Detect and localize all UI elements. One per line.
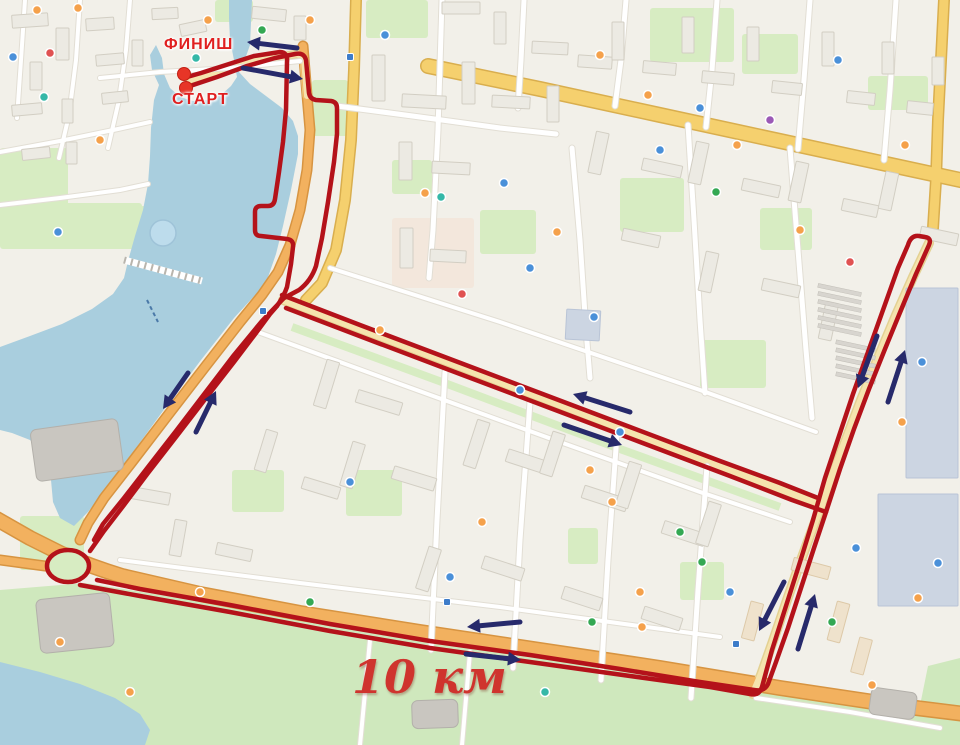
building (462, 62, 475, 104)
finish-label: ФИНИШ (164, 36, 233, 54)
poi-icon (596, 51, 605, 60)
poi-icon (553, 228, 562, 237)
poi-icon (33, 6, 42, 15)
building (822, 32, 834, 66)
poi-icon (918, 358, 927, 367)
building (882, 42, 894, 74)
building (643, 61, 677, 76)
poi-icon (376, 326, 385, 335)
park-area (480, 210, 536, 254)
building (56, 28, 69, 60)
building (771, 80, 802, 95)
building (906, 101, 933, 116)
fountain-circle (150, 220, 176, 246)
building (62, 99, 73, 123)
bus-stop-icon (733, 641, 740, 648)
building (399, 142, 412, 180)
poi-icon (458, 290, 467, 299)
building (402, 94, 447, 109)
poi-icon (54, 228, 63, 237)
building (12, 103, 43, 117)
building (152, 7, 179, 19)
bus-stop-icon (260, 308, 267, 315)
poi-icon (712, 188, 721, 197)
park-area (700, 340, 766, 388)
poi-icon (638, 623, 647, 632)
poi-icon (868, 681, 877, 690)
poi-icon (796, 226, 805, 235)
poi-icon (766, 116, 775, 125)
building (400, 228, 413, 268)
bus-stop-icon (444, 599, 451, 606)
poi-icon (541, 688, 550, 697)
building (846, 91, 875, 106)
distance-label: 10 км (352, 650, 507, 704)
park-area (366, 0, 428, 38)
poi-icon (421, 189, 430, 198)
poi-icon (196, 588, 205, 597)
building (294, 16, 306, 40)
building (66, 142, 77, 164)
building (492, 95, 531, 109)
bus-stop-icon (347, 54, 354, 61)
poi-icon (381, 31, 390, 40)
park-area (0, 203, 142, 249)
poi-icon (500, 179, 509, 188)
poi-icon (588, 618, 597, 627)
route-map: ФИНИШ СТАРТ 10 км (0, 0, 960, 745)
poi-icon (898, 418, 907, 427)
map-canvas (0, 0, 960, 745)
poi-icon (204, 16, 213, 25)
building (12, 13, 49, 28)
building (494, 12, 506, 44)
poi-icon (852, 544, 861, 553)
building (532, 41, 569, 55)
building (432, 161, 471, 175)
park-area (568, 528, 598, 564)
building (30, 62, 42, 90)
roundabout-ring (47, 550, 89, 582)
building (86, 17, 115, 31)
industrial-building (906, 288, 958, 478)
poi-icon (9, 53, 18, 62)
building (430, 249, 467, 263)
poi-icon (306, 598, 315, 607)
poi-icon (636, 588, 645, 597)
industrial-building (878, 494, 958, 606)
poi-icon (914, 594, 923, 603)
poi-icon (698, 558, 707, 567)
poi-icon (96, 136, 105, 145)
poi-icon (846, 258, 855, 267)
building (747, 27, 759, 61)
building (932, 57, 944, 85)
building (101, 91, 128, 105)
poi-icon (676, 528, 685, 537)
building (35, 592, 114, 653)
poi-icon (616, 428, 625, 437)
poi-icon (586, 466, 595, 475)
poi-icon (126, 688, 135, 697)
building (96, 53, 125, 66)
park-area (232, 470, 284, 512)
poi-icon (526, 264, 535, 273)
building (868, 687, 917, 720)
building (442, 2, 480, 14)
poi-icon (733, 141, 742, 150)
poi-icon (46, 49, 55, 58)
poi-icon (828, 618, 837, 627)
start-label: СТАРТ (172, 91, 229, 109)
poi-icon (696, 104, 705, 113)
poi-icon (901, 141, 910, 150)
poi-icon (608, 498, 617, 507)
poi-icon (446, 573, 455, 582)
poi-icon (478, 518, 487, 527)
poi-icon (192, 54, 201, 63)
park-area (620, 178, 684, 232)
poi-icon (306, 16, 315, 25)
poi-icon (590, 313, 599, 322)
building (578, 55, 613, 69)
finish-dot (178, 68, 191, 81)
poi-icon (56, 638, 65, 647)
poi-icon (258, 26, 267, 35)
poi-icon (437, 193, 446, 202)
poi-icon (644, 91, 653, 100)
poi-icon (726, 588, 735, 597)
poi-icon (934, 559, 943, 568)
building (22, 147, 51, 161)
poi-icon (74, 4, 83, 13)
poi-icon (656, 146, 665, 155)
building (702, 71, 735, 86)
poi-icon (834, 56, 843, 65)
building (612, 22, 624, 60)
poi-icon (516, 386, 525, 395)
building (132, 40, 143, 66)
poi-icon (346, 478, 355, 487)
building (682, 17, 694, 53)
building (547, 86, 559, 122)
building (372, 55, 385, 101)
poi-icon (40, 93, 49, 102)
